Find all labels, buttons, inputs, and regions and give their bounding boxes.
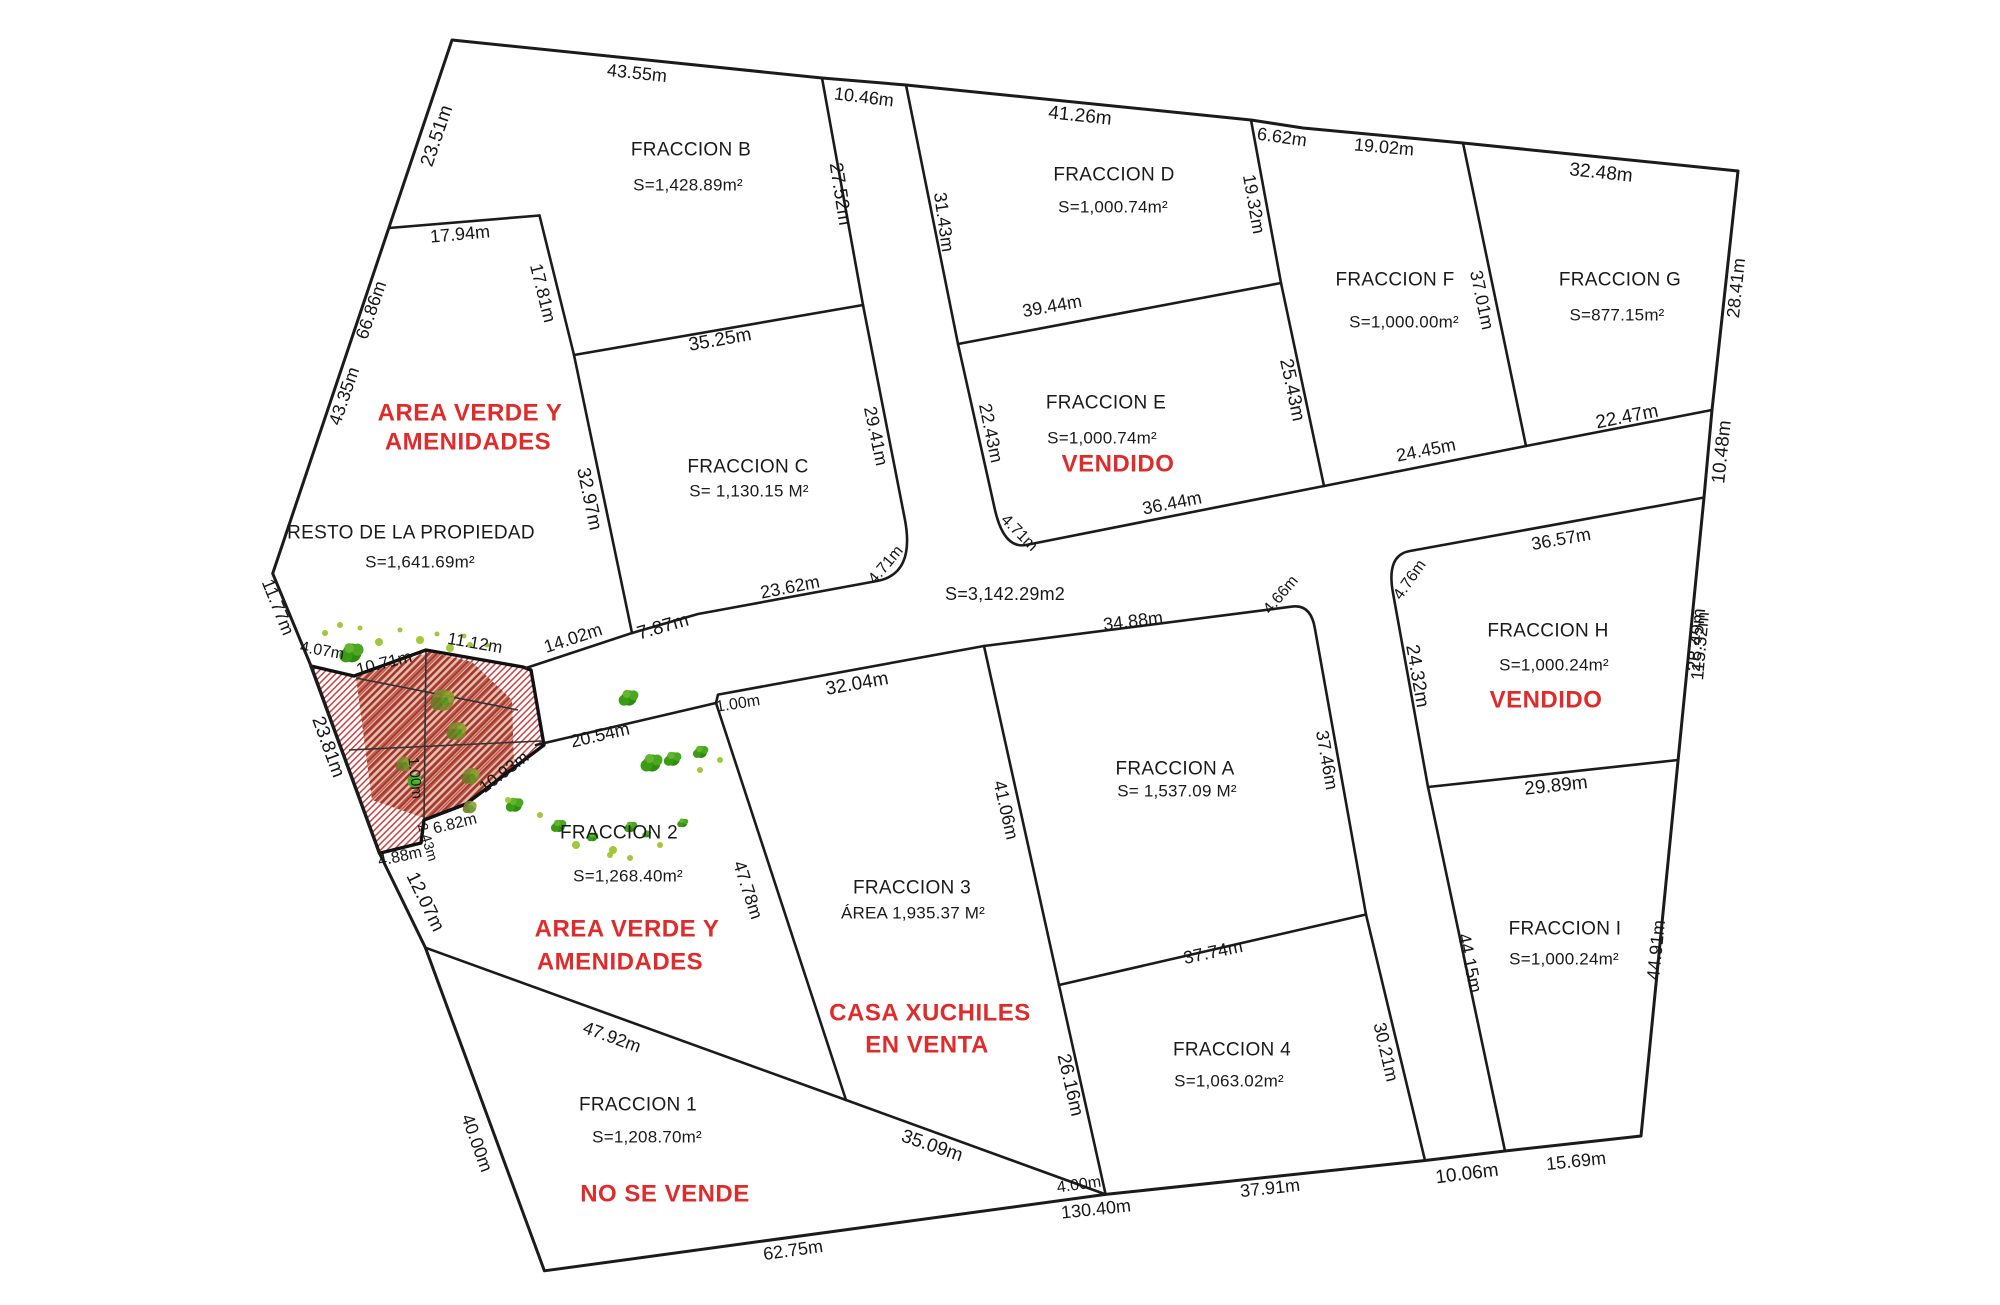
svg-text:FRACCION C: FRACCION C bbox=[687, 457, 808, 478]
svg-text:AREA VERDE Y: AREA VERDE Y bbox=[378, 400, 563, 427]
svg-text:S=1,208.70m²: S=1,208.70m² bbox=[592, 1128, 702, 1147]
svg-text:S=3,142.29m2: S=3,142.29m2 bbox=[945, 584, 1065, 604]
svg-text:AREA VERDE Y: AREA VERDE Y bbox=[535, 916, 720, 943]
svg-text:S=1,000.00m²: S=1,000.00m² bbox=[1349, 313, 1459, 332]
svg-text:FRACCION I: FRACCION I bbox=[1509, 919, 1622, 940]
svg-text:FRACCION H: FRACCION H bbox=[1487, 621, 1608, 642]
svg-text:S= 1,130.15 M²: S= 1,130.15 M² bbox=[689, 482, 809, 501]
svg-text:EN VENTA: EN VENTA bbox=[865, 1032, 989, 1059]
svg-text:VENDIDO: VENDIDO bbox=[1062, 451, 1175, 478]
svg-text:S=1,268.40m²: S=1,268.40m² bbox=[573, 867, 683, 886]
svg-text:FRACCION D: FRACCION D bbox=[1053, 165, 1174, 186]
svg-text:S=1,063.02m²: S=1,063.02m² bbox=[1174, 1072, 1284, 1091]
svg-text:FRACCION 3: FRACCION 3 bbox=[853, 878, 971, 899]
svg-text:RESTO DE LA PROPIEDAD: RESTO DE LA PROPIEDAD bbox=[287, 523, 535, 544]
svg-text:S=1,000.24m²: S=1,000.24m² bbox=[1499, 656, 1609, 675]
svg-text:FRACCION E: FRACCION E bbox=[1046, 393, 1166, 414]
svg-text:FRACCION G: FRACCION G bbox=[1559, 270, 1681, 291]
svg-text:AMENIDADES: AMENIDADES bbox=[385, 429, 551, 456]
svg-text:CASA XUCHILES: CASA XUCHILES bbox=[829, 1000, 1031, 1027]
svg-text:FRACCION 2: FRACCION 2 bbox=[560, 823, 678, 844]
svg-text:NO SE VENDE: NO SE VENDE bbox=[580, 1181, 750, 1208]
svg-text:FRACCION B: FRACCION B bbox=[631, 140, 751, 161]
svg-text:S=1,428.89m²: S=1,428.89m² bbox=[633, 176, 743, 195]
svg-text:FRACCION F: FRACCION F bbox=[1335, 270, 1454, 291]
svg-text:S=877.15m²: S=877.15m² bbox=[1569, 306, 1664, 325]
svg-text:FRACCION A: FRACCION A bbox=[1115, 759, 1234, 780]
svg-text:S= 1,537.09 M²: S= 1,537.09 M² bbox=[1117, 782, 1237, 801]
svg-text:S=1,000.74m²: S=1,000.74m² bbox=[1047, 429, 1157, 448]
svg-text:S=1,000.24m²: S=1,000.24m² bbox=[1509, 950, 1619, 969]
svg-text:AMENIDADES: AMENIDADES bbox=[537, 949, 703, 976]
svg-text:ÁREA 1,935.37 M²: ÁREA 1,935.37 M² bbox=[841, 904, 985, 923]
svg-text:S=1,000.74m²: S=1,000.74m² bbox=[1058, 198, 1168, 217]
svg-text:FRACCION 4: FRACCION 4 bbox=[1173, 1040, 1291, 1061]
svg-text:VENDIDO: VENDIDO bbox=[1490, 687, 1603, 714]
svg-text:S=1,641.69m²: S=1,641.69m² bbox=[365, 553, 475, 572]
svg-text:FRACCION 1: FRACCION 1 bbox=[579, 1095, 697, 1116]
